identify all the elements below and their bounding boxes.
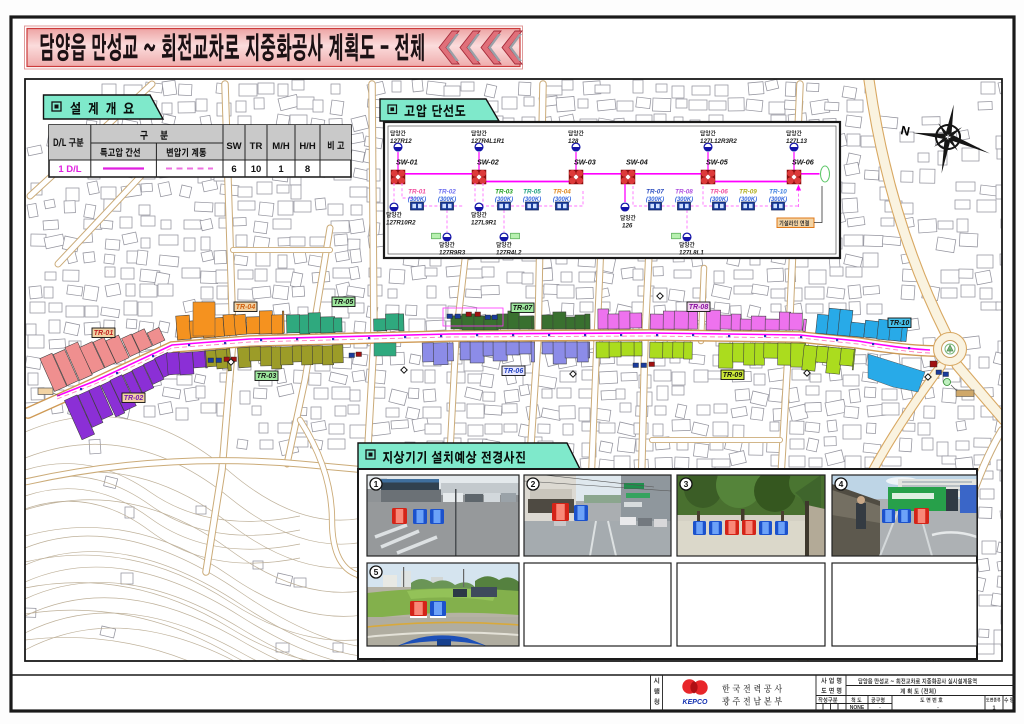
svg-text:SW-02: SW-02 (477, 158, 499, 167)
svg-text:SW: SW (226, 141, 241, 152)
svg-text:SW-05: SW-05 (706, 158, 729, 167)
svg-text:6: 6 (231, 164, 236, 175)
svg-text:TR-07: TR-07 (513, 305, 534, 312)
svg-text:1: 1 (374, 479, 379, 489)
svg-text:10: 10 (251, 164, 262, 175)
svg-text:1 D/L: 1 D/L (58, 164, 81, 175)
svg-text:(300K): (300K) (408, 197, 426, 203)
svg-text:128: 128 (568, 138, 579, 145)
svg-text:SW-04: SW-04 (626, 158, 648, 167)
svg-text:(300K): (300K) (438, 197, 456, 203)
svg-text:SW-06: SW-06 (792, 158, 815, 167)
svg-text:(300K): (300K) (710, 197, 728, 203)
svg-text:(300K): (300K) (523, 197, 541, 203)
svg-text:TR-01: TR-01 (94, 330, 114, 337)
svg-text:(300K): (300K) (553, 197, 571, 203)
svg-text:TR-03: TR-03 (257, 373, 277, 380)
svg-text:TR-03: TR-03 (495, 189, 513, 196)
svg-text:TR-09: TR-09 (739, 189, 757, 196)
svg-text:127L13: 127L13 (786, 138, 808, 145)
svg-text:NONE: NONE (850, 705, 865, 711)
svg-text:(300K): (300K) (495, 197, 513, 203)
svg-text:TR-10: TR-10 (769, 189, 787, 196)
svg-text:TR-05: TR-05 (334, 299, 354, 306)
svg-text:KEPCO: KEPCO (683, 699, 708, 706)
svg-text:(300K): (300K) (675, 197, 693, 203)
svg-text:TR-05: TR-05 (523, 189, 541, 196)
svg-text:TR-06: TR-06 (504, 368, 524, 375)
svg-text:TR-07: TR-07 (646, 189, 664, 196)
svg-text:TR-10: TR-10 (890, 320, 910, 327)
svg-text:5: 5 (374, 567, 379, 577)
svg-text:127R10R2: 127R10R2 (386, 220, 416, 227)
svg-text:127L8L1: 127L8L1 (679, 250, 704, 257)
svg-text:127R4L2: 127R4L2 (496, 250, 522, 257)
svg-text:126: 126 (622, 223, 633, 230)
svg-text:TR-09: TR-09 (723, 372, 743, 379)
svg-text:TR-08: TR-08 (675, 189, 693, 196)
svg-text:127R9R3: 127R9R3 (439, 250, 466, 257)
svg-text:1: 1 (992, 706, 995, 712)
svg-text:H/H: H/H (299, 141, 316, 152)
svg-text:TR-02: TR-02 (124, 395, 144, 402)
svg-text:TR-04: TR-04 (236, 304, 256, 311)
svg-text:TR-02: TR-02 (438, 189, 456, 196)
svg-text:127R12: 127R12 (390, 138, 412, 145)
svg-text:TR-08: TR-08 (689, 304, 709, 311)
svg-text:TR: TR (250, 141, 263, 152)
svg-text:SW-03: SW-03 (574, 158, 596, 167)
svg-text:8: 8 (305, 164, 310, 175)
svg-text:2: 2 (531, 479, 536, 489)
svg-text:(300K): (300K) (646, 197, 664, 203)
svg-text:-: - (879, 706, 881, 712)
svg-text:127L12R3R2: 127L12R3R2 (700, 138, 737, 145)
svg-text:1: 1 (278, 164, 284, 175)
svg-text:TR-04: TR-04 (553, 189, 571, 196)
svg-text:(300K): (300K) (769, 197, 787, 203)
svg-text:M/H: M/H (272, 141, 290, 152)
svg-text:127R4L1R1: 127R4L1R1 (471, 138, 505, 145)
svg-text:TR-06: TR-06 (710, 189, 728, 196)
svg-text:TR-01: TR-01 (408, 189, 426, 196)
svg-text:127L9R1: 127L9R1 (471, 220, 497, 227)
svg-text:SW-01: SW-01 (396, 158, 418, 167)
svg-text:-: - (937, 706, 939, 712)
svg-text:(300K): (300K) (739, 197, 757, 203)
svg-text:3: 3 (684, 479, 689, 489)
svg-text:4: 4 (839, 479, 844, 489)
